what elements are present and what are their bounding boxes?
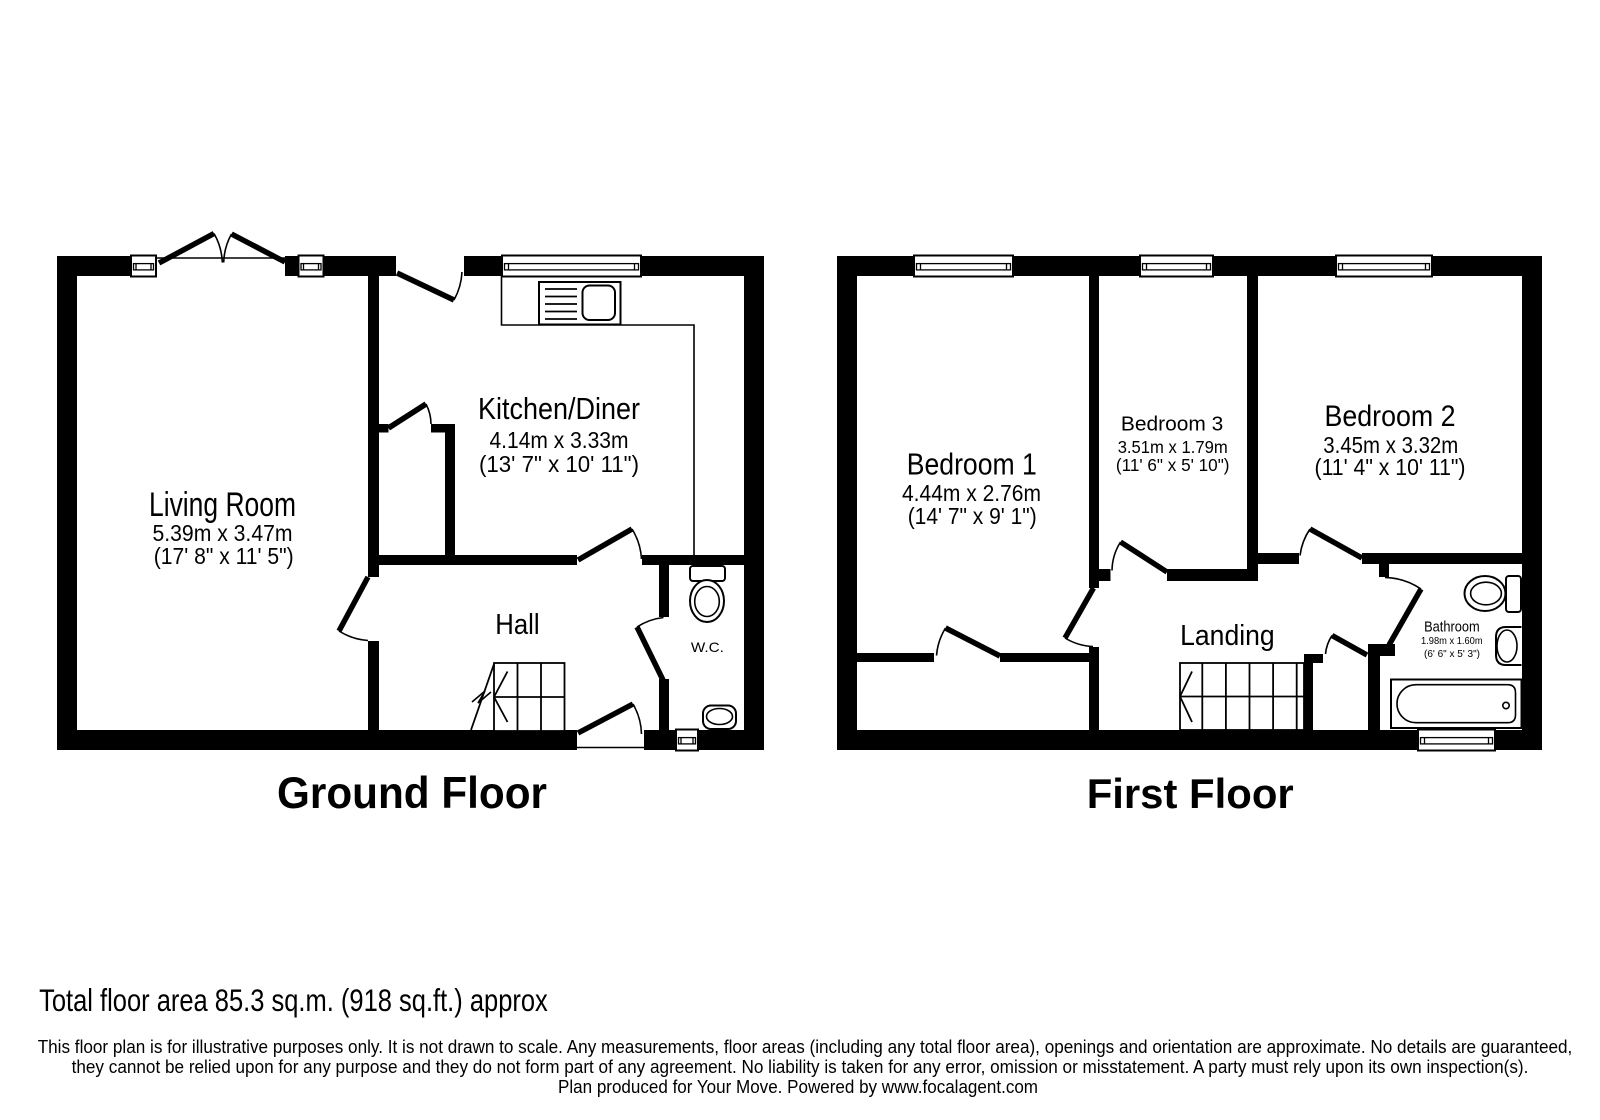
svg-text:Kitchen/Diner: Kitchen/Diner [478,391,640,426]
svg-text:This floor plan is for illustr: This floor plan is for illustrative purp… [38,1037,1573,1057]
svg-text:(14' 7" x 9' 1"): (14' 7" x 9' 1") [908,503,1037,529]
svg-text:Bedroom 1: Bedroom 1 [907,447,1037,482]
svg-text:Bedroom 2: Bedroom 2 [1325,400,1456,433]
svg-text:Landing: Landing [1180,620,1275,652]
svg-text:(17' 8" x 11' 5"): (17' 8" x 11' 5") [154,543,294,569]
svg-text:they cannot be relied upon for: they cannot be relied upon for any purpo… [72,1057,1529,1077]
svg-text:Living Room: Living Room [149,486,296,524]
svg-text:1.98m x 1.60m: 1.98m x 1.60m [1421,635,1483,647]
svg-text:(6' 6" x 5' 3"): (6' 6" x 5' 3") [1424,648,1480,660]
svg-text:Total floor area 85.3 sq.m. (9: Total floor area 85.3 sq.m. (918 sq.ft.)… [39,982,548,1018]
svg-text:(11' 4" x 10' 11"): (11' 4" x 10' 11") [1315,454,1466,480]
svg-text:Hall: Hall [495,609,539,641]
svg-text:Plan produced for Your Move. P: Plan produced for Your Move. Powered by … [558,1077,1038,1097]
svg-text:3.51m x 1.79m: 3.51m x 1.79m [1118,437,1228,457]
svg-text:First Floor: First Floor [1087,770,1294,817]
svg-text:Ground Floor: Ground Floor [277,769,547,818]
svg-text:Bedroom 3: Bedroom 3 [1121,414,1223,436]
svg-text:Bathroom: Bathroom [1424,620,1480,636]
svg-text:(11' 6" x 5' 10"): (11' 6" x 5' 10") [1116,455,1230,475]
svg-text:4.14m x 3.33m: 4.14m x 3.33m [490,427,629,453]
svg-text:(13' 7" x 10' 11"): (13' 7" x 10' 11") [479,451,639,477]
svg-text:W.C.: W.C. [691,639,724,655]
